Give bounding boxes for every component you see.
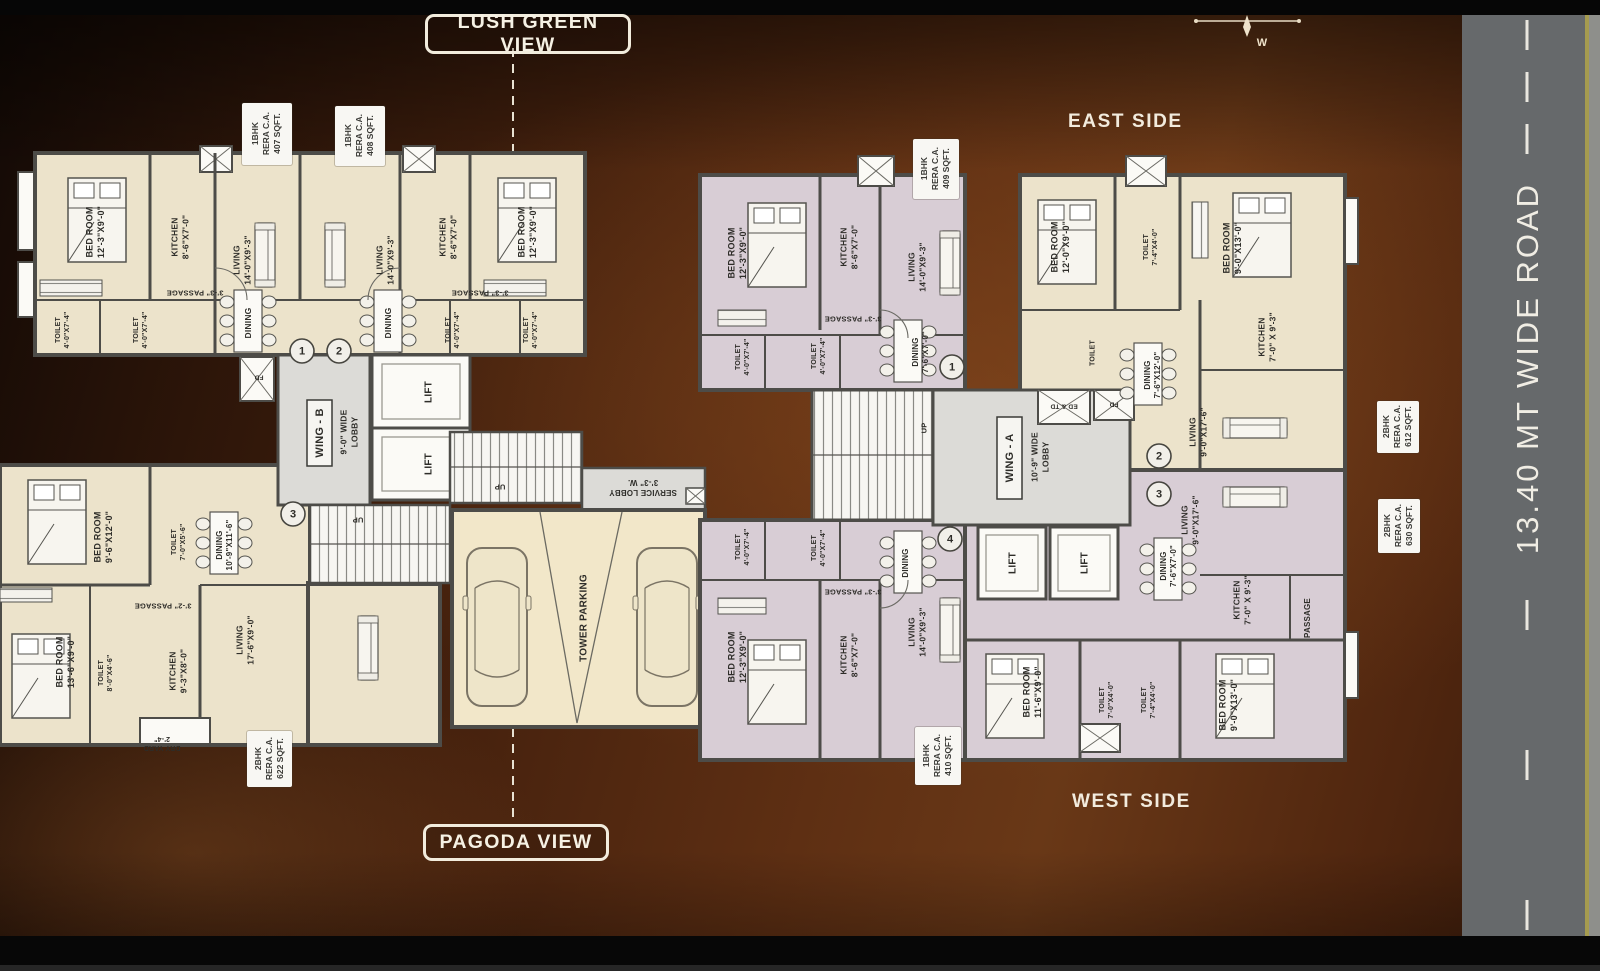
balcony-ledge (1345, 198, 1358, 264)
room-label-toilet: TOILET4'-0"X7'-4" (523, 311, 539, 348)
bed (748, 203, 806, 287)
entrance-number: 3 (281, 502, 305, 526)
entrance-number: 1 (940, 355, 964, 379)
room-label-toilet: TOILET (1089, 340, 1096, 366)
parking-label: TOWER PARKING (579, 574, 590, 662)
pagoda-view-text: PAGODA VIEW (440, 831, 593, 854)
compass-tip (1297, 19, 1301, 23)
svg-text:2: 2 (1156, 451, 1162, 463)
wardrobe (1192, 202, 1208, 258)
room-label-toilet: TOILET4'-0"X7'-4" (811, 529, 827, 566)
bed (28, 480, 86, 564)
parked-car (463, 548, 531, 706)
room-label-toilet: TOILET7'-0"X5'-6" (171, 523, 187, 560)
duct-box (403, 146, 435, 172)
duct-label: FD (254, 374, 263, 381)
room-label-toilet: TOILET4'-0"X7'-4" (735, 338, 751, 375)
sofa (358, 616, 378, 680)
rera-area-label: 1BHKRERA C.A.408 SQFT. (335, 106, 385, 166)
staircase (812, 390, 933, 520)
room-label-bedroom: BED ROOM9'-0"X13'-0" (1222, 222, 1243, 274)
sofa (940, 598, 960, 662)
lift-label: LIFT (424, 381, 435, 403)
room-label-toilet: TOILET7'-4"X4'-0" (1143, 228, 1159, 265)
svg-text:1: 1 (949, 362, 955, 374)
sofa (940, 231, 960, 295)
room-label-passage: PASSAGE (1303, 598, 1312, 638)
entrance-number: 4 (938, 527, 962, 551)
room-label-kitchen: KITCHEN8'-6"X7'-0" (839, 633, 860, 678)
duct-box (1126, 156, 1166, 186)
rera-area-label: 1BHKRERA C.A.410 SQFT. (915, 727, 961, 785)
sofa (325, 223, 345, 287)
room-label-kitchen: KITCHEN8'-6"X7'-0" (170, 215, 191, 260)
svg-text:3: 3 (1156, 489, 1162, 501)
rera-area-label: 2BHKRERA C.A.612 SQFT. (1377, 401, 1419, 453)
road-name-label: 13.40 MT WIDE ROAD (1510, 182, 1545, 554)
lift-label: LIFT (1008, 552, 1019, 574)
stairs-up-label: UP (920, 423, 929, 434)
wardrobe (718, 598, 766, 614)
wing-a-label: WING - A (1004, 434, 1016, 483)
compass-needle (1243, 15, 1251, 37)
room-label-kitchen: KITCHEN7'-0" X 9'-3" (1232, 575, 1253, 625)
bottom-edge-strip (0, 965, 1600, 971)
room-label-dining: DINING (901, 548, 910, 577)
rera-area-label: 2BHKRERA C.A.622 SQFT. (247, 731, 292, 787)
wardrobe (0, 588, 52, 602)
duct-label: FD (1109, 401, 1118, 408)
wardrobe (40, 280, 102, 296)
floor-plan-svg: 13.40 MT WIDE ROAD W (0, 0, 1600, 971)
road-edge-line (1585, 15, 1589, 936)
entrance-number: 1 (290, 339, 314, 363)
wardrobe (718, 310, 766, 326)
lush-green-view-label: LUSH GREEN VIEW (425, 14, 631, 54)
pagoda-view-label: PAGODA VIEW (423, 824, 609, 861)
entrance-number: 2 (1147, 444, 1171, 468)
compass: W (1194, 15, 1301, 49)
room-label-passage: 3'-3" PASSAGE (825, 314, 882, 323)
floor-plan-page: 13.40 MT WIDE ROAD W (0, 0, 1600, 971)
room-label-toilet: TOILET4'-0"X7'-4" (445, 311, 461, 348)
staircase (310, 505, 450, 583)
room-label-passage: 3'-2" PASSAGE (135, 601, 192, 610)
lift-label: LIFT (1080, 552, 1091, 574)
sofa (255, 223, 275, 287)
room-label-kitchen: KITCHEN8'-6"X7'-0" (839, 225, 860, 270)
stairs-up-label: UP (353, 515, 364, 524)
room-label-toilet: TOILET4'-0"X7'-4" (811, 337, 827, 374)
room-label-toilet: TOILET7'-4"X4'-0" (1141, 681, 1157, 718)
entrance-number: 2 (327, 339, 351, 363)
balcony-ledge (18, 262, 34, 317)
stairs-up-label: UP (495, 482, 506, 491)
room-label-toilet: TOILET8'-0"X4'-6" (98, 654, 114, 691)
room-label-bedroom: BED ROOM12'-3"X9'-0" (727, 631, 748, 683)
rera-area-label: 1BHKRERA C.A.409 SQFT. (913, 139, 959, 199)
room-label-passage: 3'-3" PASSAGE (452, 288, 509, 297)
duct-box (858, 156, 894, 186)
staircase (450, 432, 582, 503)
compass-west-label: W (1257, 37, 1268, 49)
room-label-dining: DINING (383, 307, 393, 338)
room-label-bedroom: BED ROOM11'-6"X9'-0" (1022, 666, 1043, 718)
east-side-label: EAST SIDE (1068, 111, 1183, 133)
west-side-label: WEST SIDE (1072, 791, 1191, 813)
room-label-bedroom: BED ROOM9'-0"X13'-0" (1218, 679, 1239, 731)
duct-box (1080, 724, 1120, 752)
svg-text:3: 3 (290, 509, 296, 521)
sofa (1223, 418, 1287, 438)
road-shoulder (1589, 15, 1600, 936)
parked-car (633, 548, 701, 706)
balcony-ledge (1345, 632, 1358, 698)
room-label-bedroom: BED ROOM9'-6"X12'-0" (93, 511, 114, 563)
duct-box (686, 488, 705, 504)
room-label-bedroom: BED ROOM12'-0"X9'-0" (1050, 221, 1071, 273)
room-label-kitchen: KITCHEN8'-6"X7'-0" (438, 215, 459, 260)
room-label-passage: 3'-3" PASSAGE (825, 587, 882, 596)
room-label-bedroom: BED ROOM12'-3"X9'-0" (517, 206, 538, 258)
room-label-passage: 3'-3" PASSAGE (167, 288, 224, 297)
room-label-kitchen: KITCHEN9'-3"X8'-0" (168, 649, 189, 694)
bed (748, 640, 806, 724)
road: 13.40 MT WIDE ROAD (1462, 15, 1600, 936)
room-label-bedroom: BED ROOM12'-3"X9'-0" (85, 206, 106, 258)
room-label-kitchen: KITCHEN7'-0" X 9'-3" (1257, 312, 1278, 362)
entrance-number: 3 (1147, 482, 1171, 506)
svg-text:1: 1 (299, 346, 305, 358)
balcony-ledge (18, 172, 34, 250)
duct-label: ED & TD (1050, 403, 1078, 410)
room-label-toilet: TOILET4'-0"X7'-4" (133, 311, 149, 348)
sofa (1223, 487, 1287, 507)
room-label-bedroom: BED ROOM13'-6"X9'-0" (55, 636, 76, 688)
lift-shaft (372, 355, 470, 428)
rera-area-label: 1BHKRERA C.A.407 SQFT. (242, 103, 292, 165)
rera-area-label: 2BHKRERA C.A.630 SQFT. (1378, 499, 1420, 553)
room-label-bedroom: BED ROOM12'-3"X9'-0" (727, 227, 748, 279)
dry-yard (140, 718, 210, 744)
svg-text:2: 2 (336, 346, 342, 358)
wing-b-label: WING - B (314, 408, 326, 457)
room-label-toilet: TOILET4'-0"X7'-4" (55, 311, 71, 348)
svg-text:4: 4 (947, 534, 954, 546)
room-label-toilet: TOILET7'-0"X4'-0" (1099, 681, 1115, 718)
lift-label: LIFT (424, 453, 435, 475)
room-label-dining: DINING (243, 307, 253, 338)
lush-green-view-text: LUSH GREEN VIEW (428, 11, 628, 57)
room-label-toilet: TOILET4'-0"X7'-4" (735, 528, 751, 565)
compass-tip (1194, 19, 1198, 23)
